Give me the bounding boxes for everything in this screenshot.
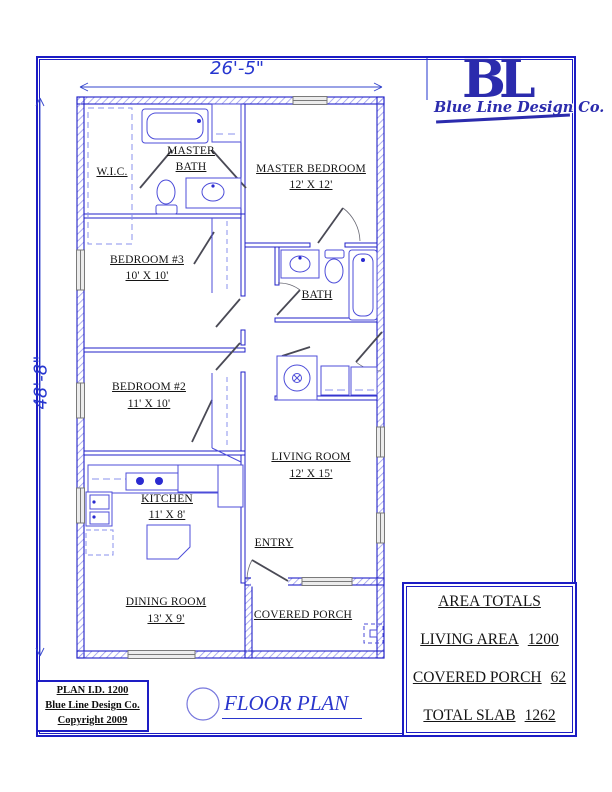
room-label-covered-porch: COVERED PORCH: [254, 610, 352, 622]
drawing-title: FLOOR PLAN: [222, 691, 362, 719]
blueprint-page: 26'-5" 48'-8" BL Blue Line Design Co. W.…: [0, 0, 612, 792]
room-size-dining-room: 13' X 9': [147, 614, 184, 626]
dimension-top: 26'-5": [210, 58, 264, 79]
room-size-kitchen: 11' X 8': [149, 510, 186, 522]
room-label-bath: BATH: [302, 290, 333, 302]
room-size-living-room: 12' X 15': [290, 469, 333, 481]
title-block-company: Blue Line Design Co.: [38, 700, 147, 711]
area-totals-box: AREA TOTALS LIVING AREA1200 COVERED PORC…: [402, 582, 577, 737]
area-totals-row-porch: COVERED PORCH62: [404, 669, 575, 687]
dimension-left: 48'-8": [31, 355, 52, 409]
room-size-master-bedroom: 12' X 12': [290, 180, 333, 192]
title-block-copyright: Copyright 2009: [38, 715, 147, 726]
room-label-master-bath-1: MASTER: [167, 146, 215, 158]
area-totals-row-living: LIVING AREA1200: [404, 631, 575, 649]
room-label-master-bedroom: MASTER BEDROOM: [256, 164, 366, 176]
room-label-bedroom2: BEDROOM #2: [112, 382, 186, 394]
title-block: PLAN I.D. 1200 Blue Line Design Co. Copy…: [36, 680, 149, 732]
room-label-living-room: LIVING ROOM: [271, 452, 350, 464]
area-totals-row-slab: TOTAL SLAB1262: [404, 707, 575, 725]
room-size-bedroom2: 11' X 10': [128, 399, 171, 411]
room-size-bedroom3: 10' X 10': [126, 271, 169, 283]
room-label-bedroom3: BEDROOM #3: [110, 255, 184, 267]
room-label-entry: ENTRY: [255, 538, 294, 550]
room-label-wic: W.I.C.: [96, 167, 127, 179]
room-label-kitchen: KITCHEN: [141, 494, 193, 506]
closets: [212, 218, 241, 462]
utility-fixtures: [277, 356, 377, 400]
room-label-dining-room: DINING ROOM: [126, 597, 206, 609]
title-block-plan-id: PLAN I.D. 1200: [38, 685, 147, 696]
drawing-title-circle: [187, 688, 219, 720]
bath-fixtures: [281, 250, 377, 320]
area-totals-title: AREA TOTALS: [404, 593, 575, 611]
room-label-master-bath-2: BATH: [176, 162, 207, 174]
interior-walls: [84, 104, 377, 583]
